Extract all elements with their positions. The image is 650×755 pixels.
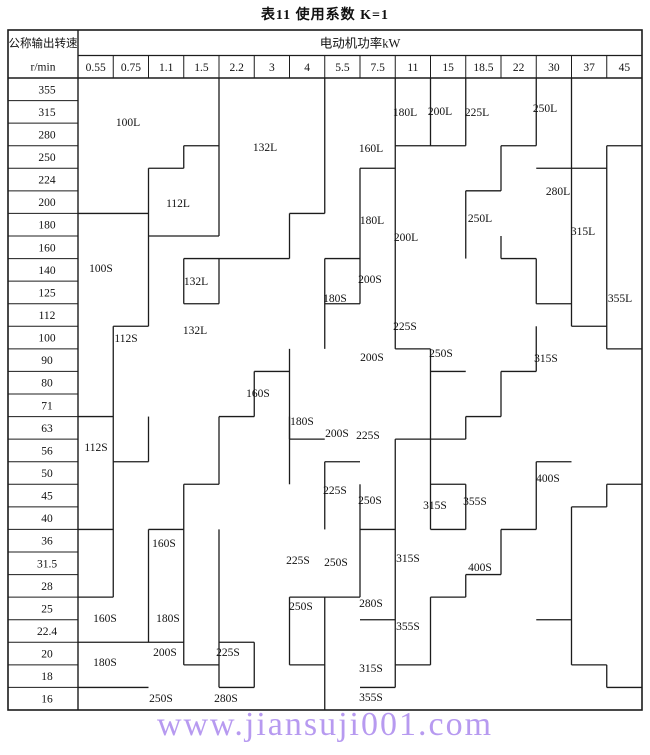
speed-row-label: 28	[41, 581, 53, 593]
region-label: 280S	[359, 598, 383, 610]
region-label: 200S	[153, 647, 177, 659]
region-label: 160S	[246, 388, 270, 400]
region-label: 225S	[356, 430, 380, 442]
power-col-label: 37	[583, 62, 595, 74]
row-header-unit: r/min	[31, 62, 56, 74]
power-col-label: 45	[619, 62, 631, 74]
region-label: 355L	[608, 293, 632, 305]
region-label: 225S	[216, 647, 240, 659]
speed-row-label: 160	[38, 242, 56, 254]
speed-row-label: 56	[41, 445, 53, 457]
speed-row-label: 36	[41, 536, 53, 548]
region-label: 250L	[533, 103, 557, 115]
row-header-title: 公称输出转速	[9, 36, 78, 50]
speed-row-label: 125	[38, 287, 56, 299]
region-label: 112S	[84, 442, 107, 454]
power-col-label: 1.1	[159, 62, 174, 74]
power-col-label: 7.5	[370, 62, 385, 74]
region-label: 132L	[183, 325, 207, 337]
region-label: 280L	[546, 186, 570, 198]
region-label: 112L	[166, 198, 190, 210]
region-label: 250S	[324, 557, 348, 569]
speed-row-label: 200	[38, 197, 56, 209]
region-label: 250S	[429, 348, 453, 360]
region-label: 112S	[114, 333, 137, 345]
speed-row-label: 80	[41, 378, 53, 390]
speed-row-label: 224	[38, 175, 56, 187]
speed-row-label: 140	[38, 265, 56, 277]
region-label: 250S	[149, 693, 173, 705]
region-label: 200S	[325, 428, 349, 440]
speed-row-label: 63	[41, 423, 53, 435]
region-label: 355S	[463, 496, 487, 508]
region-label: 160S	[93, 613, 117, 625]
region-label: 315S	[396, 553, 420, 565]
region-label: 180S	[93, 657, 117, 669]
region-label: 180S	[290, 416, 314, 428]
region-label: 400S	[536, 473, 560, 485]
power-col-label: 2.2	[229, 62, 244, 74]
region-label: 200S	[358, 274, 382, 286]
region-label: 160S	[152, 538, 176, 550]
power-col-label: 1.5	[194, 62, 209, 74]
region-label: 280S	[214, 693, 238, 705]
region-label: 355S	[396, 621, 420, 633]
power-col-label: 15	[442, 62, 454, 74]
region-label: 100S	[89, 263, 113, 275]
speed-row-label: 25	[41, 603, 53, 615]
speed-row-label: 16	[41, 694, 53, 706]
speed-row-label: 100	[38, 333, 56, 345]
speed-row-label: 315	[38, 107, 56, 119]
speed-row-label: 112	[39, 310, 56, 322]
region-label: 200L	[428, 106, 452, 118]
speed-row-label: 45	[41, 491, 53, 503]
region-label: 180L	[360, 215, 384, 227]
selection-chart-page: 表11 使用系数 K=1 公称输出转速r/min电动机功率kW0.550.751…	[0, 0, 650, 755]
speed-row-label: 50	[41, 468, 53, 480]
region-label: 250L	[468, 213, 492, 225]
watermark: www.jiansuji001.com	[0, 706, 650, 744]
speed-row-label: 355	[38, 84, 56, 96]
region-label: 180L	[393, 107, 417, 119]
region-label: 315S	[423, 500, 447, 512]
speed-row-label: 280	[38, 129, 56, 141]
speed-row-label: 250	[38, 152, 56, 164]
selection-table: 公称输出转速r/min电动机功率kW0.550.751.11.52.2345.5…	[0, 0, 650, 755]
region-label: 180S	[323, 293, 347, 305]
region-label: 180S	[156, 613, 180, 625]
power-col-label: 30	[548, 62, 560, 74]
region-label: 225S	[286, 555, 310, 567]
region-label: 315S	[534, 353, 558, 365]
region-label: 132L	[184, 276, 208, 288]
region-label: 225L	[465, 107, 489, 119]
speed-row-label: 71	[41, 400, 53, 412]
region-label: 200S	[360, 352, 384, 364]
region-label: 200L	[394, 232, 418, 244]
power-col-label: 4	[304, 62, 310, 74]
col-header-title: 电动机功率kW	[320, 36, 401, 51]
region-label: 250S	[358, 495, 382, 507]
region-label: 225S	[393, 321, 417, 333]
region-label: 315L	[571, 226, 595, 238]
region-label: 400S	[468, 562, 492, 574]
power-col-label: 5.5	[335, 62, 350, 74]
power-col-label: 0.55	[86, 62, 106, 74]
speed-row-label: 180	[38, 220, 56, 232]
power-col-label: 22	[513, 62, 525, 74]
region-label: 225S	[323, 485, 347, 497]
speed-row-label: 18	[41, 671, 53, 683]
speed-row-label: 22.4	[37, 626, 57, 638]
region-label: 160L	[359, 143, 383, 155]
region-label: 315S	[359, 663, 383, 675]
speed-row-label: 31.5	[37, 558, 57, 570]
speed-row-label: 90	[41, 355, 53, 367]
power-col-label: 0.75	[121, 62, 141, 74]
power-col-label: 11	[407, 62, 418, 74]
power-col-label: 18.5	[473, 62, 493, 74]
region-label: 250S	[289, 601, 313, 613]
region-label: 355S	[359, 692, 383, 704]
speed-row-label: 40	[41, 513, 53, 525]
region-label: 132L	[253, 142, 277, 154]
speed-row-label: 20	[41, 649, 53, 661]
power-col-label: 3	[269, 62, 275, 74]
region-label: 100L	[116, 117, 140, 129]
